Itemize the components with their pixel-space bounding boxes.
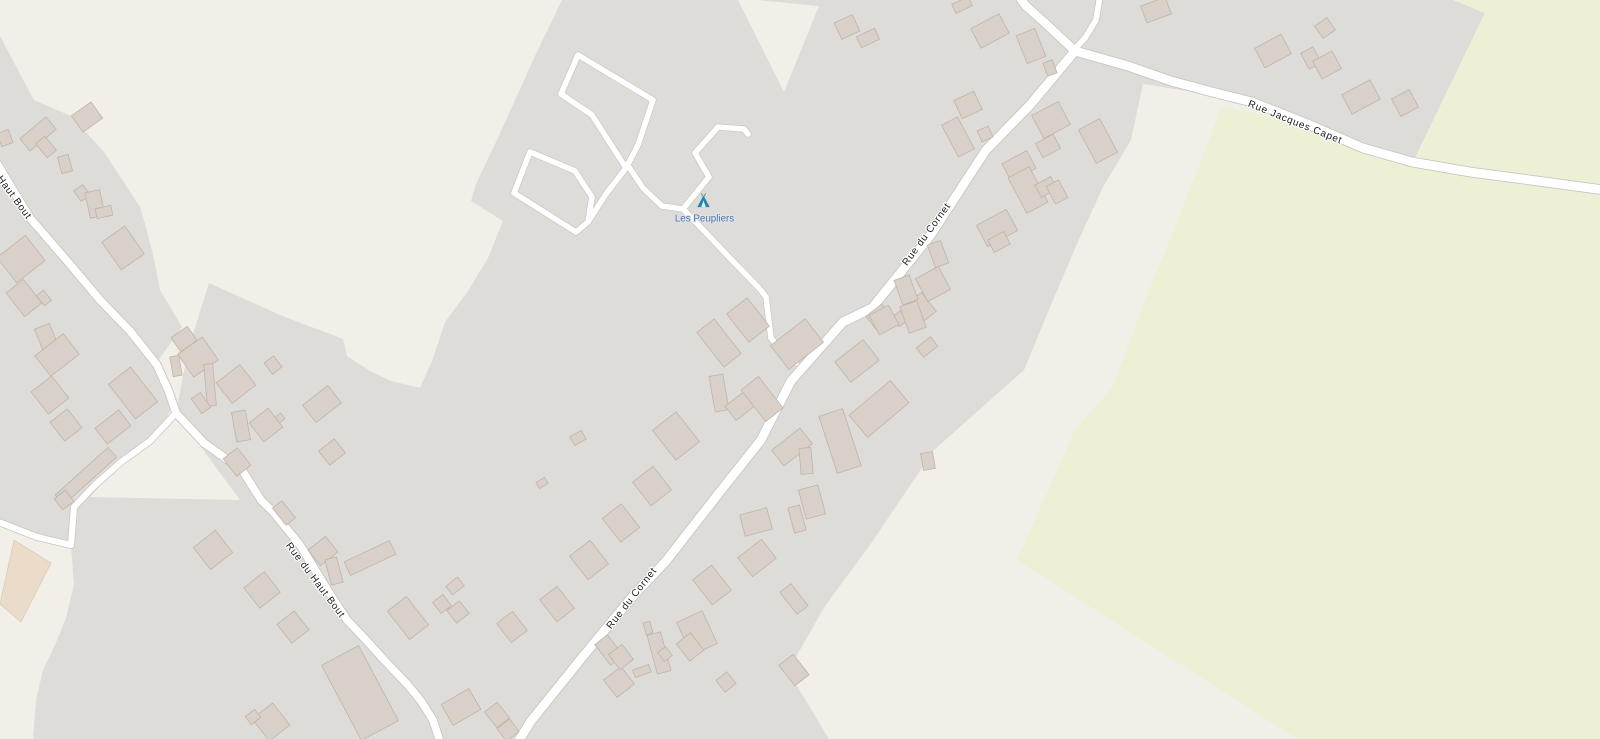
svg-text:Les Peupliers: Les Peupliers [675, 214, 734, 225]
